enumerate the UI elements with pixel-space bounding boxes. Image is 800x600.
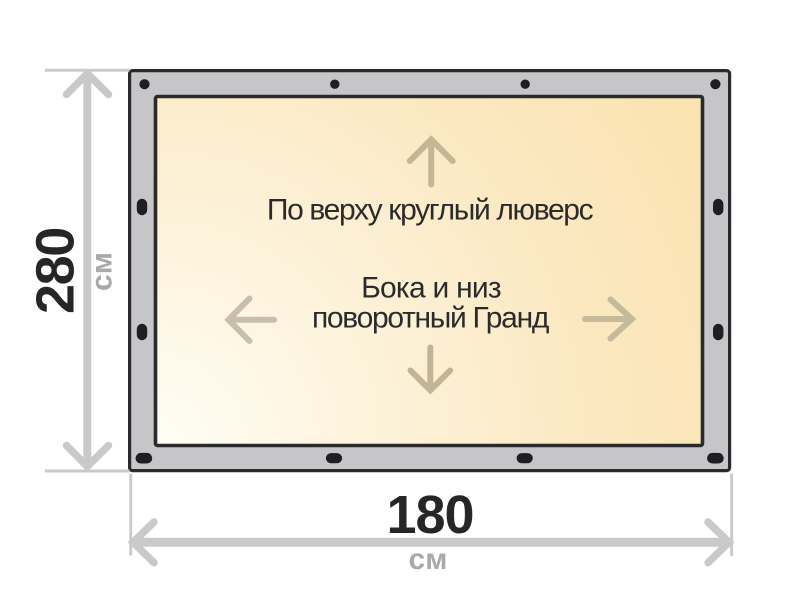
svg-text:180: 180 [386,485,473,545]
svg-text:По верху круглый люверс: По верху круглый люверс [267,194,594,227]
svg-text:см: см [409,543,448,576]
svg-text:Бока и низ: Бока и низ [361,272,501,305]
svg-text:см: см [85,252,118,291]
svg-text:280: 280 [26,228,86,314]
svg-text:поворотный Гранд: поворотный Гранд [312,302,549,335]
